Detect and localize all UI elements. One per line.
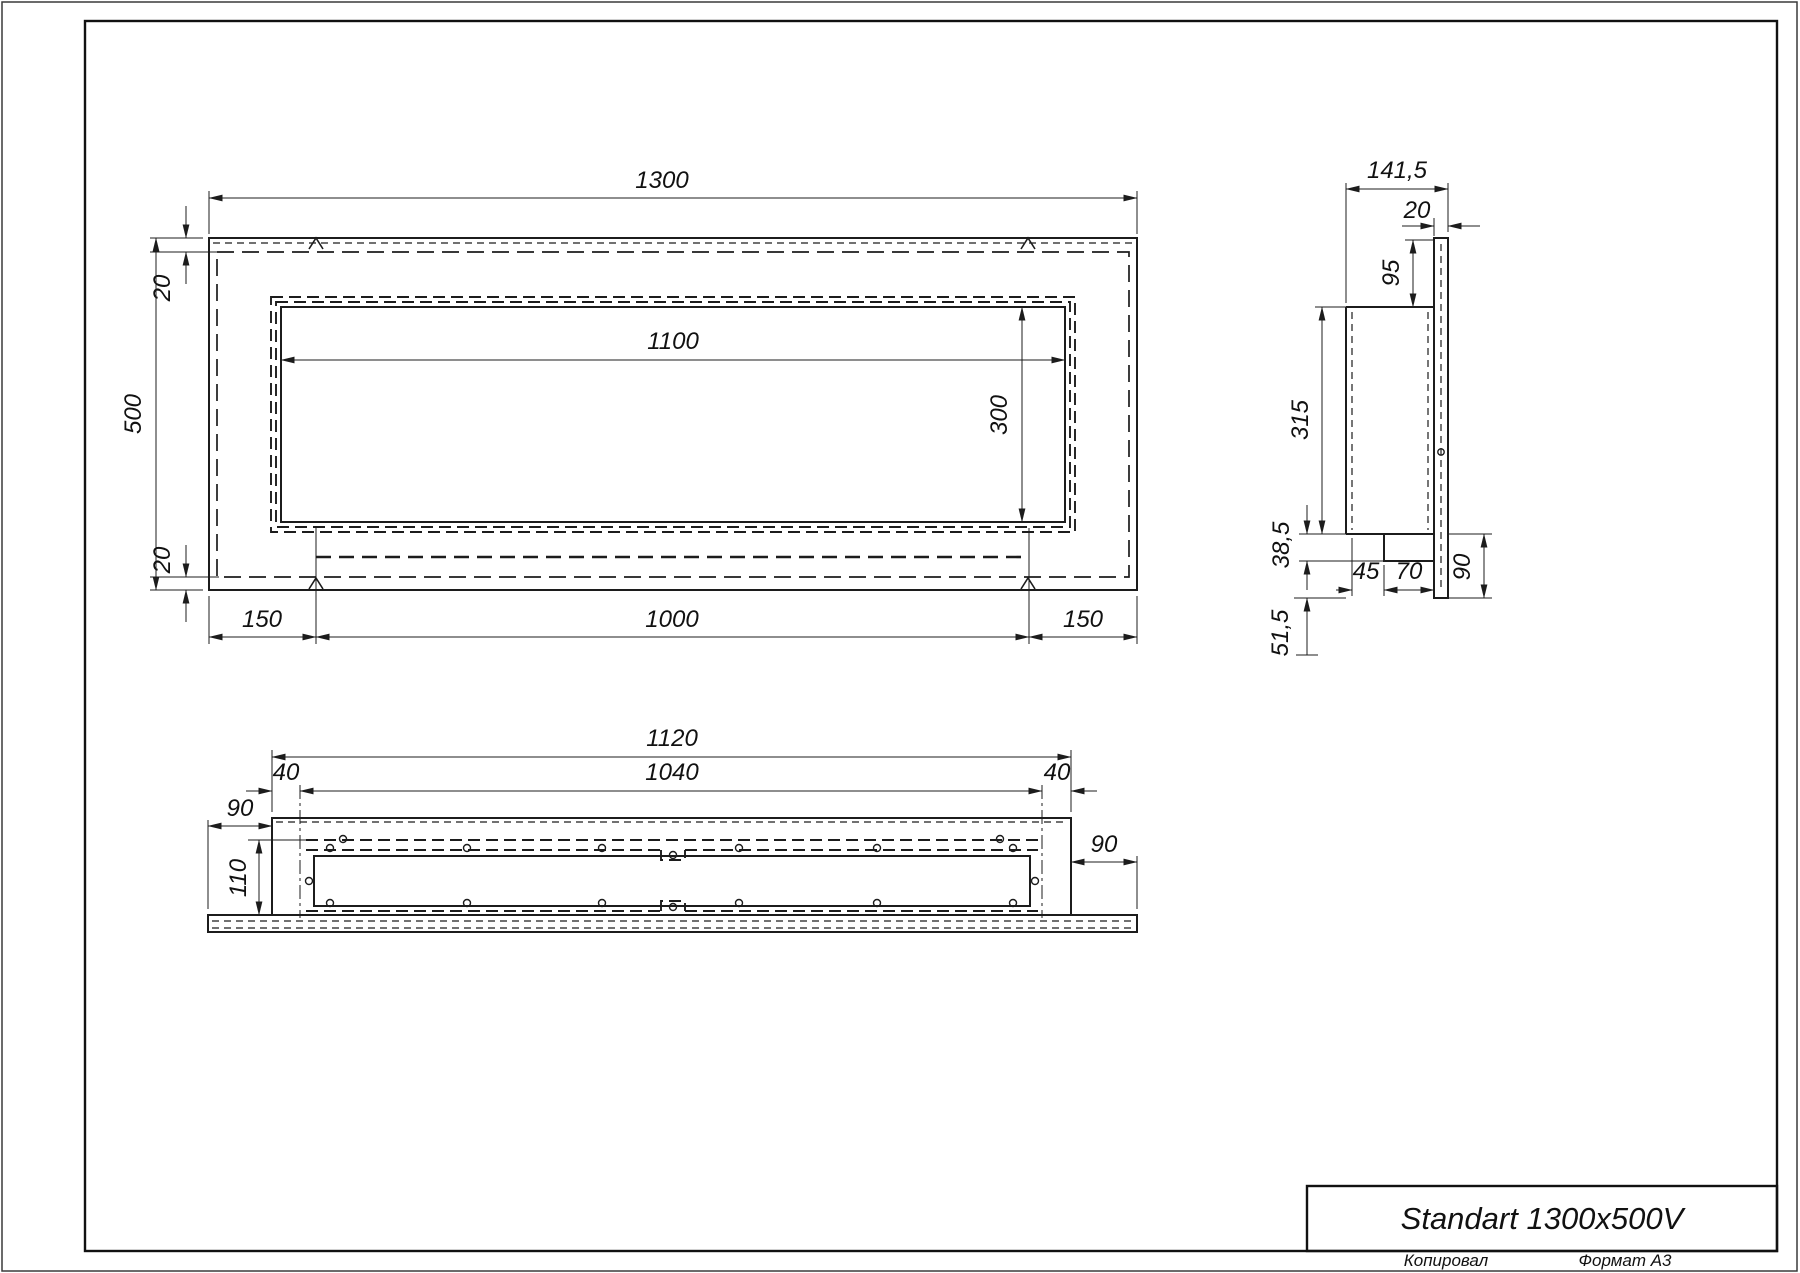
dim-side-bottom-offset: 51,5 [1267,609,1294,656]
side-base-box [1384,534,1434,561]
dim-front-bottom-gap: 20 [149,546,176,574]
dim-front-top-gap: 20 [149,274,176,302]
bottom-mount-plate [208,915,1137,932]
dim-side-overall-depth: 141,5 [1367,157,1428,184]
dim-front-margin-left: 150 [242,606,283,633]
hole-mark [306,878,313,885]
dim-side-top-offset: 95 [1378,259,1405,286]
title-block: Standart 1300x500V [1307,1186,1777,1251]
hole-mark [1032,878,1039,885]
dim-front-margin-right: 150 [1063,606,1104,633]
bottom-view: 1120 1040 40 40 90 110 90 [208,725,1137,932]
dim-bottom-inner-width: 1040 [645,759,699,786]
dim-side-wall-thickness: 20 [1403,197,1431,224]
hole-mark [340,836,347,843]
drawing-sheet: 1300 20 500 20 1100 300 150 1000 150 [0,0,1800,1273]
hole-mark [997,836,1004,843]
dim-front-overall-height: 500 [120,393,147,434]
side-view: 141,5 20 95 315 38,5 45 70 90 [1267,157,1492,656]
dim-side-wall-drop: 90 [1449,553,1476,580]
front-view: 1300 20 500 20 1100 300 150 1000 150 [120,167,1137,644]
title-block-model: Standart 1300x500V [1401,1201,1687,1236]
dim-front-opening-width: 1100 [647,328,699,355]
hole-mark [464,845,471,852]
bottom-inner-tray [314,856,1030,906]
side-body [1346,307,1434,534]
footer-format-label: Формат А3 [1578,1251,1672,1270]
dim-bottom-plate-ext-left: 90 [227,795,254,822]
dim-bottom-plate-ext-right: 90 [1091,831,1118,858]
dim-bottom-end-right: 40 [1044,759,1071,786]
dim-bottom-body-width: 1120 [646,725,698,752]
dim-side-body-height: 315 [1287,399,1314,440]
footer-copied-label: Копировал [1404,1251,1489,1270]
footer: Копировал Формат А3 [1404,1251,1672,1270]
dim-side-base-a: 45 [1353,558,1380,585]
dim-front-overall-width: 1300 [635,167,689,194]
dim-bottom-body-depth: 110 [225,858,252,897]
mount-holes [306,836,1039,911]
engineering-drawing: 1300 20 500 20 1100 300 150 1000 150 [0,0,1800,1273]
dim-front-inner-width: 1000 [645,606,699,633]
dim-front-opening-height: 300 [986,394,1013,435]
dim-side-step-height: 38,5 [1268,521,1295,568]
dim-bottom-end-left: 40 [273,759,300,786]
dim-side-base-b: 70 [1396,558,1423,585]
drawing-line [85,21,1777,1251]
edge-mark [1021,578,1035,589]
